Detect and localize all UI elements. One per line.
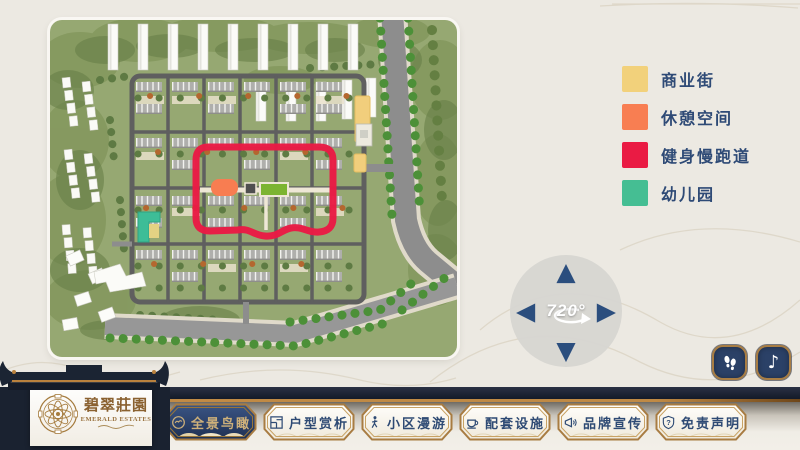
music-note-icon: ♪	[768, 354, 780, 372]
nav-label: 户型赏析	[289, 413, 349, 432]
legend-label: 商业街	[661, 67, 715, 91]
footprints-button[interactable]	[712, 345, 747, 380]
chinese-roof-ornament	[0, 356, 172, 390]
legend-swatch-jogging-track	[622, 142, 648, 168]
nav-roam-button[interactable]: 小区漫游	[361, 403, 453, 441]
brand-promo-icon	[563, 415, 578, 430]
legend-item-rest-space: 休憩空间	[622, 104, 751, 130]
nav-label: 配套设施	[485, 413, 545, 432]
panorama-icon	[171, 415, 186, 430]
nav-floorplan-button[interactable]: 户型赏析	[263, 403, 355, 441]
legend-label: 休憩空间	[661, 105, 733, 129]
legend-item-commercial: 商业街	[622, 66, 751, 92]
legend-swatch-kindergarten	[622, 180, 648, 206]
legend-label: 健身慢跑道	[661, 143, 751, 167]
app-window: 商业街 休憩空间 健身慢跑道 幼儿园 ▲ ▼ ◀ ▶ 720°	[0, 0, 800, 450]
legend-label: 幼儿园	[661, 181, 715, 205]
footprints-icon	[720, 353, 740, 373]
roam-icon	[367, 415, 382, 430]
legend-item-kindergarten: 幼儿园	[622, 180, 751, 206]
kindergarten-overlay	[138, 212, 160, 242]
nav-label: 小区漫游	[387, 413, 447, 432]
brand-title-cn: 碧翠莊園	[84, 398, 148, 415]
rotate-label: 720°	[546, 301, 585, 321]
map-legend: 商业街 休憩空间 健身慢跑道 幼儿园	[622, 66, 751, 218]
nav-facilities-button[interactable]: 配套设施	[459, 403, 551, 441]
central-pavilion	[245, 183, 256, 194]
nav-label: 全景鸟瞰	[191, 413, 251, 432]
svg-text:?: ?	[666, 418, 671, 427]
nav-brand-button[interactable]: 品牌宣传	[557, 403, 649, 441]
nav-disclaimer-button[interactable]: ? 免责声明	[655, 403, 747, 441]
masterplan-map[interactable]	[50, 20, 457, 357]
central-lawn	[260, 183, 288, 196]
emblem-medallion-icon	[38, 394, 78, 434]
brand-title-en: EMERALD ESTATES	[81, 416, 152, 423]
nav-panorama-button[interactable]: 全景鸟瞰	[165, 403, 257, 441]
rotate-label-wrap: 720°	[510, 255, 622, 367]
nav-label: 品牌宣传	[583, 413, 643, 432]
legend-item-jogging-track: 健身慢跑道	[622, 142, 751, 168]
rotate-720-control[interactable]: ▲ ▼ ◀ ▶ 720°	[510, 255, 622, 367]
nav-label: 免责声明	[681, 413, 741, 432]
legend-swatch-commercial	[622, 66, 648, 92]
brand-script-flourish	[96, 423, 136, 430]
floorplan-icon	[269, 415, 284, 430]
disclaimer-icon: ?	[661, 415, 676, 430]
brand-logo: 碧翠莊園 EMERALD ESTATES	[30, 382, 152, 446]
music-button[interactable]: ♪	[756, 345, 791, 380]
facilities-icon	[465, 415, 480, 430]
rest-space-overlay	[211, 179, 238, 196]
legend-swatch-rest-space	[622, 104, 648, 130]
